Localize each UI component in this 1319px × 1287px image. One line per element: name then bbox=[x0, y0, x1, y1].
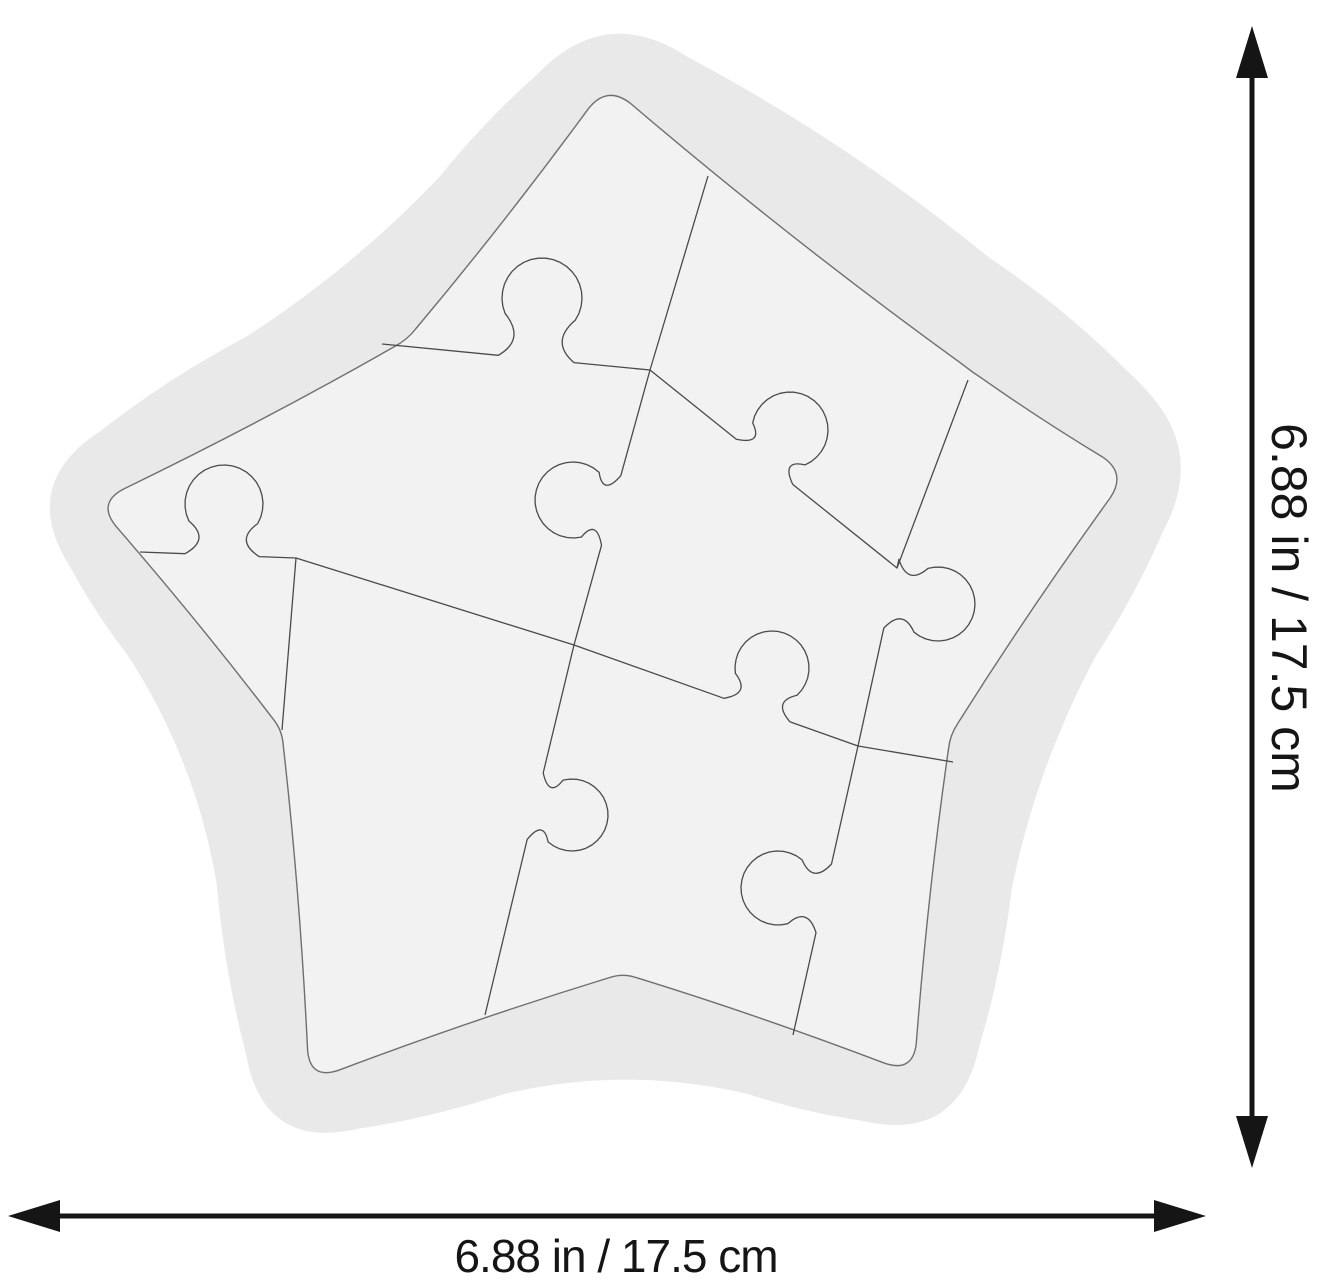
height-dimension-label: 6.88 in / 17.5 cm bbox=[1261, 423, 1317, 793]
puzzle-board bbox=[50, 34, 1181, 1133]
star-puzzle-product-image: 6.88 in / 17.5 cm 6.88 in / 17.5 cm bbox=[0, 0, 1319, 1287]
arrowhead-right-icon bbox=[1154, 1200, 1206, 1232]
width-dimension-label: 6.88 in / 17.5 cm bbox=[454, 1230, 777, 1282]
product-photo: 6.88 in / 17.5 cm 6.88 in / 17.5 cm bbox=[0, 0, 1319, 1287]
height-dimension-arrow: 6.88 in / 17.5 cm bbox=[1236, 26, 1317, 1168]
arrowhead-left-icon bbox=[8, 1200, 60, 1232]
width-dimension-arrow: 6.88 in / 17.5 cm bbox=[8, 1200, 1206, 1282]
arrowhead-up-icon bbox=[1236, 26, 1268, 78]
arrowhead-down-icon bbox=[1236, 1116, 1268, 1168]
